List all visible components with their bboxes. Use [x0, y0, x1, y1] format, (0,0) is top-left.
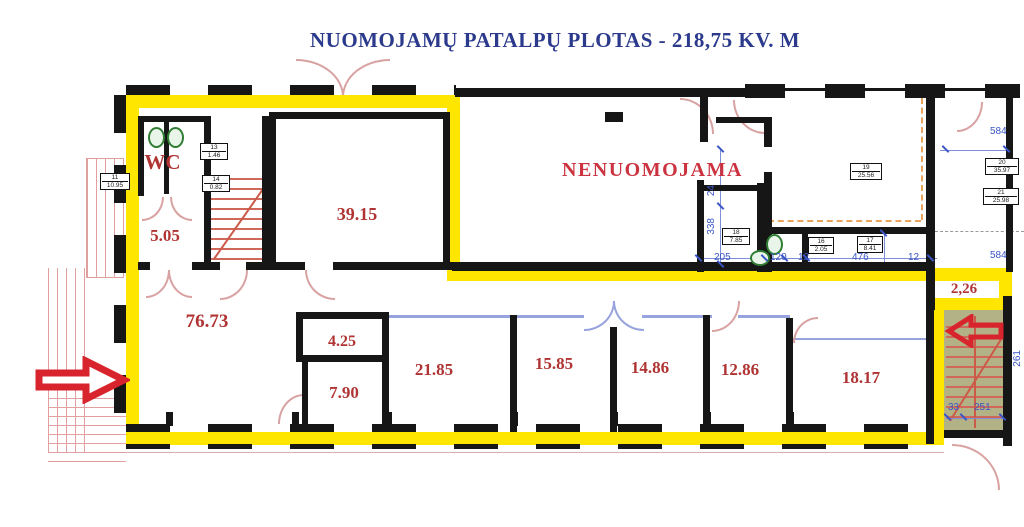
wall-425-bottom: [296, 355, 388, 362]
room-label-226: 2,26: [938, 281, 990, 298]
wall-stub-1: [166, 412, 173, 426]
wall-nen-bottom: [452, 262, 935, 271]
room-tag: 131.46: [200, 143, 228, 160]
wall-corridor-d: [333, 262, 455, 270]
outline-top: [126, 95, 460, 108]
wall-far-right-top: [1006, 88, 1013, 272]
room-tag: 140.82: [202, 175, 230, 192]
tag-area: 25.56: [852, 172, 880, 179]
wall-3915-top: [269, 112, 449, 119]
dim-584-top: 584: [990, 126, 1007, 137]
dashed-orange-vertical: [921, 98, 923, 220]
room-label-7673: 76.73: [167, 311, 247, 333]
door-arc-790: [278, 394, 304, 424]
door-arc-double-right: [613, 301, 644, 331]
room-tag: 162.05: [808, 237, 834, 254]
door-arc-1286: [712, 301, 740, 332]
dimline-stairwell: [946, 418, 1004, 419]
tag-area: 1.46: [202, 152, 226, 159]
dim-584-mid: 584: [990, 250, 1007, 261]
wall-top-right-piers: [745, 84, 1020, 98]
wall-stub-top: [605, 112, 623, 122]
wall-bottom-piers-bottom: [126, 444, 944, 449]
bluewall-a: [388, 315, 584, 318]
wall-top-left-piers: [126, 85, 456, 95]
sink-icon: [750, 250, 770, 266]
wall-stub-3: [385, 412, 392, 426]
floor-plan: NUOMOJAMŲ PATALPŲ PLOTAS - 218,75 KV. M: [0, 0, 1024, 527]
tag-area: 35.97: [987, 167, 1017, 174]
door-arc-stairwell-exit: [952, 444, 1000, 490]
tag-number: 17: [859, 237, 881, 245]
dashed-orange-horizontal: [768, 220, 921, 222]
wall-425-top: [296, 312, 388, 319]
room-label-790: 7.90: [314, 383, 374, 403]
stairs-arrow-icon: [944, 314, 1006, 348]
tag-area: 2.05: [810, 246, 832, 253]
tag-number: 21: [985, 189, 1017, 197]
toilet-icon: [148, 127, 165, 148]
bluewall-c: [738, 315, 790, 318]
tag-number: 16: [810, 238, 832, 246]
dimline-584-top: [940, 150, 1010, 151]
wall-nen-header: [716, 117, 766, 123]
door-arc-1817: [793, 317, 818, 343]
door-arc-505-right: [168, 270, 192, 298]
door-arc-wc-1: [142, 197, 164, 221]
toilet-icon: [167, 127, 184, 148]
door-arc-nen: [680, 98, 714, 134]
room-label-2185: 21.85: [394, 360, 474, 380]
room-tag: 187.85: [722, 228, 750, 245]
room-tag: 1110.95: [100, 173, 130, 190]
tag-number: 11: [102, 174, 128, 182]
room-label-wc: WC: [135, 150, 190, 175]
wall-right-main: [926, 96, 935, 272]
page-title: NUOMOJAMŲ PATALPŲ PLOTAS - 218,75 KV. M: [290, 28, 820, 53]
outline-right-horizontal: [932, 298, 1012, 310]
tag-number: 18: [724, 229, 748, 237]
wall-19-left-a: [764, 117, 772, 147]
dim-120: 120: [770, 252, 787, 263]
tag-area: 0.82: [204, 184, 228, 191]
tag-area: 25.98: [985, 197, 1017, 204]
wall-core-right: [262, 116, 269, 268]
door-arc-far-right: [957, 102, 983, 132]
wall-bottom-piers-top: [126, 424, 944, 432]
wall-3915-left: [269, 112, 276, 270]
tag-area: 7.85: [724, 237, 748, 244]
room-tag: 178.41: [857, 236, 883, 253]
wall-790-left: [302, 358, 308, 432]
wall-corridor-b: [192, 262, 220, 270]
tag-number: 13: [202, 144, 226, 152]
wall-core-left: [204, 116, 211, 268]
dim-261: 261: [1012, 350, 1023, 367]
room-label-1486: 14.86: [610, 358, 690, 378]
wall-3915-right: [443, 112, 450, 270]
room-label-505: 5.05: [135, 226, 195, 246]
bluewall-b: [642, 315, 712, 318]
wall-corridor-c: [246, 262, 305, 270]
tag-number: 14: [204, 176, 228, 184]
room-label-425: 4.25: [312, 333, 372, 351]
room-label-1286: 12.86: [700, 360, 780, 380]
door-arc-wc-2: [170, 197, 192, 221]
door-arc-505-left: [146, 270, 170, 298]
room-label-1585: 15.85: [514, 354, 594, 374]
room-tag: 1925.56: [850, 163, 882, 180]
wall-19-bottom: [768, 227, 930, 234]
room-label-3915: 39.15: [317, 204, 397, 225]
door-arc-corridor-2: [305, 270, 335, 300]
door-arc-corridor-1: [220, 270, 248, 300]
wall-stairwell-bottom: [944, 430, 1012, 438]
wall-nen-v1: [700, 96, 708, 142]
wall-stub-4: [511, 412, 518, 426]
tag-number: 19: [852, 164, 880, 172]
room-label-1817: 18.17: [821, 368, 901, 388]
tag-area: 10.95: [102, 182, 128, 189]
wall-stub-2: [292, 412, 299, 426]
dimline-corridor: [697, 258, 937, 259]
wall-corridor-a: [138, 262, 150, 270]
dim-33: 33: [948, 402, 959, 413]
tag-number: 20: [987, 159, 1017, 167]
room-tag: 2035.97: [985, 158, 1019, 175]
zone-label-nenuomojama: NENUOMOJAMA: [562, 159, 772, 182]
wall-stub-6: [704, 412, 711, 426]
dim-12-b: 12: [908, 252, 919, 263]
tag-area: 8.41: [859, 245, 881, 252]
room-tag: 2125.98: [983, 188, 1019, 205]
dim-251: 251: [974, 402, 991, 413]
dim-476: 476: [852, 252, 869, 263]
dimension-tick: [942, 145, 950, 153]
wall-stub-7: [787, 412, 794, 426]
dim-338: 338: [706, 218, 717, 235]
ground-line: [126, 452, 944, 453]
entrance-arrow-icon: [34, 356, 130, 404]
dim-205: 205: [714, 252, 731, 263]
dim-24: 24: [706, 185, 717, 196]
wall-stub-5: [611, 412, 618, 426]
wall-stairwell-left: [926, 290, 934, 444]
wall-wc-top: [138, 116, 210, 122]
